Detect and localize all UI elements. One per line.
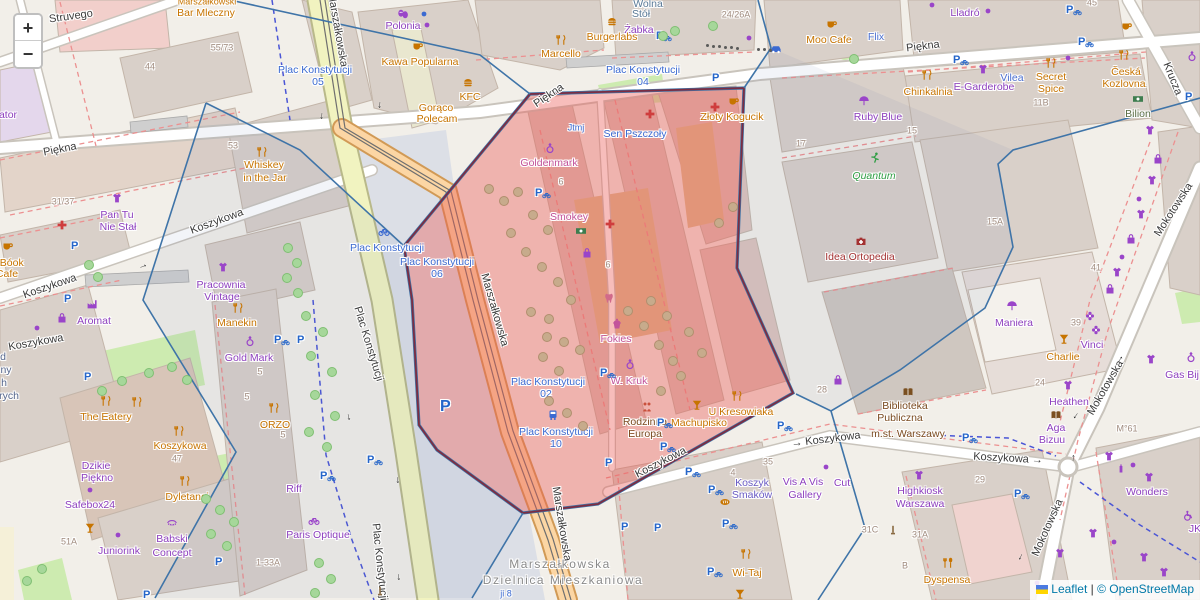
- tree-icon: [484, 184, 494, 194]
- housenumber-label: 5: [244, 393, 249, 402]
- tree-icon: [292, 258, 302, 268]
- transit-stop-label: Jtmj: [568, 124, 585, 133]
- parking-bike-icon: P: [708, 484, 724, 496]
- tree-icon: [293, 288, 303, 298]
- transit-stop-label: Plac Konstytucji: [400, 257, 474, 268]
- housenumber-label: 39: [1071, 319, 1081, 328]
- fork-icon: [131, 396, 143, 408]
- transit-stop-label: Plac Konstytucji: [606, 65, 680, 76]
- parking-bike-icon: P: [367, 454, 383, 466]
- street-label: Mokotowska: [1086, 359, 1126, 417]
- tree-icon: [310, 390, 320, 400]
- ring-icon: [1185, 351, 1197, 363]
- tree-icon: [93, 272, 103, 282]
- housenumber-label: 5: [280, 431, 285, 440]
- ring-icon: [544, 142, 556, 154]
- housenumber-label: 1-33A: [256, 559, 280, 568]
- cross-icon: [604, 218, 616, 230]
- masks-icon: [397, 8, 409, 20]
- poi-label: Heathen: [1049, 397, 1089, 408]
- tree-icon: [656, 386, 666, 396]
- poi-label: Bilion: [1125, 109, 1151, 120]
- parking-icon: P: [215, 556, 222, 568]
- poi-label: Chinkalnia: [903, 87, 952, 98]
- parking-bike-icon: P: [1066, 4, 1082, 16]
- money-icon: [1132, 93, 1144, 105]
- tree-icon: [684, 327, 694, 337]
- ring-icon: [624, 358, 636, 370]
- tree-icon: [578, 421, 588, 431]
- poi-label: The Eatery: [80, 412, 131, 423]
- housenumber-label: 6: [605, 261, 610, 270]
- shirt-icon: [1145, 353, 1157, 365]
- parking-icon: P: [440, 398, 451, 416]
- cup-icon: [826, 18, 838, 30]
- fork-icon: [256, 146, 268, 158]
- cross-icon: [709, 101, 721, 113]
- bag-icon: [1125, 233, 1137, 245]
- poi-label: Polonia: [385, 21, 420, 32]
- poi-label: Safebox24: [65, 500, 115, 511]
- bag-icon: [1104, 283, 1116, 295]
- street-label: Marszałkowska: [478, 272, 509, 347]
- ring-icon: [1186, 50, 1198, 62]
- bike-icon: [664, 420, 673, 429]
- housenumber-label: 15: [907, 127, 917, 136]
- burger-icon: [462, 77, 474, 89]
- tree-icon: [849, 54, 859, 64]
- bollard-dot: [736, 47, 739, 50]
- housenumber-label: 28: [817, 386, 827, 395]
- dot-icon: [820, 461, 832, 473]
- poi-label: Quantum: [852, 171, 895, 182]
- tree-icon: [670, 26, 680, 36]
- street-label: Koszykowa: [8, 333, 65, 353]
- poi-label: Bar Mleczny: [177, 8, 235, 19]
- parking-bike-icon: P: [685, 466, 701, 478]
- street-label: Plac Konstytucji: [351, 305, 384, 382]
- case-icon: [855, 235, 867, 247]
- fork-icon: [268, 402, 280, 414]
- fork-icon: [179, 475, 191, 487]
- bollard-dot: [769, 49, 772, 52]
- parking-icon: P: [621, 521, 628, 533]
- poi-label: Goldenmark: [520, 158, 577, 169]
- tree-icon: [22, 576, 32, 586]
- poi-label: Biblioteka: [882, 401, 928, 412]
- oneway-arrow-icon: →: [343, 411, 355, 423]
- dot-icon: [1127, 459, 1139, 471]
- tree-icon: [537, 262, 547, 272]
- cocktail-icon: [84, 522, 96, 534]
- bike-icon: [542, 190, 551, 199]
- dot-icon: [1116, 251, 1128, 263]
- cocktail-icon: [1058, 333, 1070, 345]
- poi-label: Pracownia: [196, 280, 245, 291]
- cross-icon: [56, 219, 68, 231]
- bike-icon: [729, 521, 738, 530]
- poi-label: Gas Bij: [1165, 370, 1199, 381]
- tree-icon: [654, 340, 664, 350]
- tree-icon: [538, 352, 548, 362]
- leaflet-link[interactable]: Leaflet: [1051, 582, 1087, 596]
- tree-icon: [201, 494, 211, 504]
- poi-label: KFC: [460, 92, 481, 103]
- poi-label: rych: [0, 391, 19, 402]
- poi-label: Charlie: [1046, 352, 1079, 363]
- housenumber-label: 55/73: [211, 44, 234, 53]
- attribution: Leaflet | © OpenStreetMap: [1030, 580, 1200, 600]
- parking-icon: P: [654, 522, 661, 534]
- poi-label: Wi-Taj: [732, 568, 761, 579]
- tram-icon: [547, 409, 559, 421]
- factory-icon: [86, 298, 98, 310]
- parking-bike-icon: P: [722, 518, 738, 530]
- shirt-icon: [1111, 266, 1123, 278]
- fork-icon: [731, 390, 743, 402]
- tree-icon: [301, 311, 311, 321]
- poi-label: Gold Mark: [225, 353, 273, 364]
- housenumber-label: 51A: [61, 538, 77, 547]
- poi-label: Idea Ortopedia: [825, 252, 894, 263]
- poi-label: Koszykowa: [153, 441, 206, 452]
- poi-label: Kawa Popularna: [381, 57, 458, 68]
- cup-icon: [2, 240, 14, 252]
- poi-label: Concept: [152, 548, 191, 559]
- parking-icon: P: [605, 457, 612, 469]
- street-label: Krucza: [1160, 61, 1183, 97]
- tree-icon: [182, 375, 192, 385]
- transit-stop-label: 06: [431, 269, 443, 280]
- poi-label: U Kresowiaka: [709, 407, 774, 418]
- street-label: Marszałkowska: [550, 486, 573, 562]
- tree-icon: [37, 564, 47, 574]
- tree-icon: [526, 307, 536, 317]
- bike-icon: [667, 444, 676, 453]
- dot-icon: [743, 32, 755, 44]
- money-icon: [575, 225, 587, 237]
- poi-label: Machupisko: [671, 418, 727, 429]
- bike-icon: [374, 457, 383, 466]
- tree-icon: [639, 321, 649, 331]
- poi-label: Dyspensa: [924, 575, 971, 586]
- umbrella-icon: [1006, 300, 1018, 312]
- parking-icon: P: [71, 240, 78, 252]
- poi-label: Manekin: [217, 318, 257, 329]
- cocktail-icon: [691, 399, 703, 411]
- cocktail-icon: [734, 588, 746, 600]
- poi-label: Piękno: [81, 473, 113, 484]
- housenumber-label: 24/26A: [722, 11, 751, 20]
- bag-icon: [581, 247, 593, 259]
- parking-icon: P: [1185, 91, 1192, 103]
- housenumber-label: M°61: [1116, 425, 1137, 434]
- housenumber-label: 53: [228, 142, 238, 151]
- tree-icon: [714, 218, 724, 228]
- fork-icon: [921, 69, 933, 81]
- umbrella-icon: [858, 95, 870, 107]
- map-labels-layer: StruvegoPięknaPięknaPięknaMarszałkowskaM…: [0, 0, 1200, 600]
- dot-icon: [112, 529, 124, 541]
- bike-icon: [1073, 7, 1082, 16]
- tree-icon: [215, 505, 225, 515]
- poi-label: Vis A Vis: [783, 477, 823, 488]
- tree-icon: [513, 187, 523, 197]
- bag-icon: [832, 374, 844, 386]
- pole-icon: [374, 585, 386, 597]
- housenumber-label: 31A: [912, 531, 928, 540]
- bag-icon: [1152, 153, 1164, 165]
- poi-label: Vintage: [204, 292, 239, 303]
- bollard-dot: [763, 48, 766, 51]
- parking-icon: P: [84, 371, 91, 383]
- zoom-out-button[interactable]: −: [15, 41, 41, 67]
- tree-icon: [330, 411, 340, 421]
- street-label: Piękna: [906, 39, 941, 54]
- pole-icon: [887, 524, 899, 536]
- tree-icon: [97, 386, 107, 396]
- tree-icon: [499, 196, 509, 206]
- housenumber-label: 17: [796, 140, 806, 149]
- bollard-dot: [712, 45, 715, 48]
- tree-icon: [728, 202, 738, 212]
- shirt-icon: [111, 192, 123, 204]
- shirt-icon: [1146, 174, 1158, 186]
- tree-icon: [542, 332, 552, 342]
- parking-bike-icon: P: [535, 187, 551, 199]
- oneway-arrow-icon: →: [394, 572, 405, 583]
- tree-icon: [144, 368, 154, 378]
- bottle-icon: [1115, 462, 1127, 474]
- poi-label: m.st. Warszawy: [871, 429, 945, 440]
- parking-bike-icon: P: [1014, 488, 1030, 500]
- tree-icon: [662, 311, 672, 321]
- bike-icon: [714, 569, 723, 578]
- poi-label: Babski: [156, 534, 188, 545]
- district-label: Marszałkowska: [509, 558, 611, 570]
- street-label: Koszykowa: [189, 207, 245, 236]
- transit-stop-label: Sen Pszczoły: [603, 129, 666, 140]
- cake-icon: [611, 318, 623, 330]
- poi-label: Cut: [834, 478, 850, 489]
- shirt-icon: [1144, 124, 1156, 136]
- zoom-in-button[interactable]: +: [15, 15, 41, 41]
- ukraine-flag-icon: [1036, 585, 1048, 594]
- poi-label: Złoty Kogucik: [700, 112, 763, 123]
- poi-label: d: [0, 352, 6, 363]
- dot-icon: [418, 8, 430, 20]
- housenumber-label: 11B: [1033, 99, 1048, 108]
- bollard-dot: [730, 46, 733, 49]
- wheelchair-icon: [1182, 510, 1194, 522]
- bollard-dot: [718, 45, 721, 48]
- poi-label: Moo Cafe: [806, 35, 852, 46]
- parking-icon: P: [64, 293, 71, 305]
- transit-stop-label: ji 8: [500, 590, 512, 599]
- oneway-arrow-icon: →: [1068, 453, 1079, 464]
- lash-icon: [166, 516, 178, 528]
- housenumber-label: 44: [145, 63, 155, 72]
- poi-label: Smokey: [550, 212, 588, 223]
- housenumber-label: 31C: [862, 526, 879, 535]
- bike-icon: [1021, 491, 1030, 500]
- tree-icon: [708, 21, 718, 31]
- tree-icon: [84, 260, 94, 270]
- tree-icon: [575, 345, 585, 355]
- bike-icon: [960, 57, 969, 66]
- oneway-arrow-icon: →: [1069, 409, 1083, 423]
- poi-label: Polecam: [417, 114, 458, 125]
- shirt-icon: [1138, 551, 1150, 563]
- housenumber-label: 15A: [987, 218, 1003, 227]
- parking-bike-icon: P: [657, 417, 673, 429]
- poi-label: Paris Optique: [286, 530, 350, 541]
- dot-icon: [1108, 536, 1120, 548]
- poi-label: Riff: [286, 484, 302, 495]
- poi-label: Smaków: [732, 490, 772, 501]
- bike-icon: [308, 514, 320, 526]
- bike-icon: [969, 435, 978, 444]
- shirt-icon: [913, 469, 925, 481]
- shirt-icon: [1143, 471, 1155, 483]
- poi-label: ny: [0, 365, 11, 376]
- cup-icon: [412, 40, 424, 52]
- tree-icon: [668, 356, 678, 366]
- parking-icon: P: [712, 72, 719, 84]
- cross-icon: [644, 108, 656, 120]
- tree-icon: [554, 366, 564, 376]
- burger-icon: [606, 16, 618, 28]
- housenumber-label: 5: [257, 368, 262, 377]
- street-label: → Koszykowa: [791, 430, 862, 449]
- tree-icon: [282, 273, 292, 283]
- poi-label: Dzikie: [82, 461, 111, 472]
- dot-icon: [982, 5, 994, 17]
- tree-icon: [506, 228, 516, 238]
- transit-stop-label: 04: [637, 77, 649, 88]
- dot-icon: [1133, 193, 1145, 205]
- parking-bike-icon: P: [1078, 36, 1094, 48]
- tree-icon: [528, 210, 538, 220]
- book-icon: [1050, 409, 1062, 421]
- bike-icon: [1085, 39, 1094, 48]
- bread-icon: [719, 496, 731, 508]
- poi-label: Juniorink: [98, 546, 140, 557]
- bike-icon: [607, 370, 616, 379]
- tree-icon: [222, 541, 232, 551]
- openstreetmap-link[interactable]: © OpenStreetMap: [1097, 582, 1194, 596]
- tree-icon: [566, 295, 576, 305]
- tree-icon: [206, 529, 216, 539]
- flower-icon: [1084, 310, 1096, 322]
- transit-stop-label: Plac Konstytucji: [350, 243, 424, 254]
- housenumber-label: 45: [1087, 0, 1097, 8]
- bike-icon: [692, 469, 701, 478]
- street-label: Mokotowska: [1153, 181, 1196, 238]
- poi-label: Europa: [628, 429, 662, 440]
- poi-label: Vinci: [1081, 340, 1104, 351]
- parking-bike-icon: P: [953, 54, 969, 66]
- book-icon: [902, 386, 914, 398]
- housenumber-label: 29: [975, 476, 985, 485]
- poi-label: h: [1, 378, 7, 389]
- shirt-icon: [1062, 379, 1074, 391]
- poi-label: Marszałkowski: [178, 0, 237, 7]
- oneway-arrow-icon: →: [136, 259, 149, 272]
- tree-icon: [322, 442, 332, 452]
- poi-label: Whiskey: [244, 160, 284, 171]
- poi-label: Secret: [1036, 72, 1066, 83]
- fork-icon: [740, 548, 752, 560]
- bollard-dot: [706, 44, 709, 47]
- tree-icon: [229, 517, 239, 527]
- poi-label: Aromat: [77, 316, 111, 327]
- housenumber-label: 41: [1091, 264, 1101, 273]
- forkspoon-icon: [942, 557, 954, 569]
- poi-label: Stół: [632, 9, 650, 20]
- housenumber-label: 31/37: [52, 198, 75, 207]
- fork-icon: [555, 34, 567, 46]
- transit-stop-label: Plac Konstytucji: [278, 65, 352, 76]
- tree-icon: [326, 574, 336, 584]
- bike-icon: [784, 423, 793, 432]
- shirt-icon: [1135, 208, 1147, 220]
- poi-label: JK: [1189, 524, 1200, 535]
- oneway-arrow-icon: →: [393, 475, 404, 486]
- tree-icon: [544, 396, 554, 406]
- cup-icon: [728, 95, 740, 107]
- poi-label: -Bóok: [0, 258, 24, 269]
- poi-label: in the Jar: [243, 173, 286, 184]
- poi-label: Lladró: [950, 8, 979, 19]
- bike-icon: [378, 225, 390, 237]
- map-canvas[interactable]: StruvegoPięknaPięknaPięknaMarszałkowskaM…: [0, 0, 1200, 600]
- poi-label: Highkiosk: [897, 486, 943, 497]
- zoom-control: + −: [13, 13, 43, 69]
- flower-icon: [1090, 324, 1102, 336]
- transit-stop-label: Plac Konstytucji: [511, 377, 585, 388]
- tree-icon: [676, 371, 686, 381]
- housenumber-label: 4: [730, 469, 735, 478]
- tree-icon: [562, 408, 572, 418]
- housenumber-label: 47: [172, 455, 182, 464]
- tooth-icon: [603, 292, 615, 304]
- shirt-icon: [1103, 450, 1115, 462]
- bollard-dot: [757, 48, 760, 51]
- tree-icon: [306, 351, 316, 361]
- bike-icon: [715, 487, 724, 496]
- parking-bike-icon: P: [707, 566, 723, 578]
- street-label: Koszykowa →: [973, 452, 1043, 467]
- bike-icon: [327, 473, 336, 482]
- housenumber-label: B: [902, 562, 908, 571]
- attribution-separator: |: [1087, 582, 1097, 596]
- housenumber-label: 35: [763, 458, 773, 467]
- poi-label: Aga: [1047, 423, 1066, 434]
- fork-icon: [1118, 49, 1130, 61]
- poi-label: ORZO: [260, 420, 290, 431]
- poi-label: Koszyk: [735, 478, 769, 489]
- runner-icon: [869, 152, 881, 164]
- dot-icon: [84, 484, 96, 496]
- poi-label: Fokies: [601, 334, 632, 345]
- dot-icon: [1062, 52, 1074, 64]
- parking-icon: P: [297, 334, 304, 346]
- housenumber-label: 6: [558, 178, 563, 187]
- poi-label: Cafe: [0, 269, 18, 280]
- fork-icon: [100, 395, 112, 407]
- tree-icon: [658, 31, 668, 41]
